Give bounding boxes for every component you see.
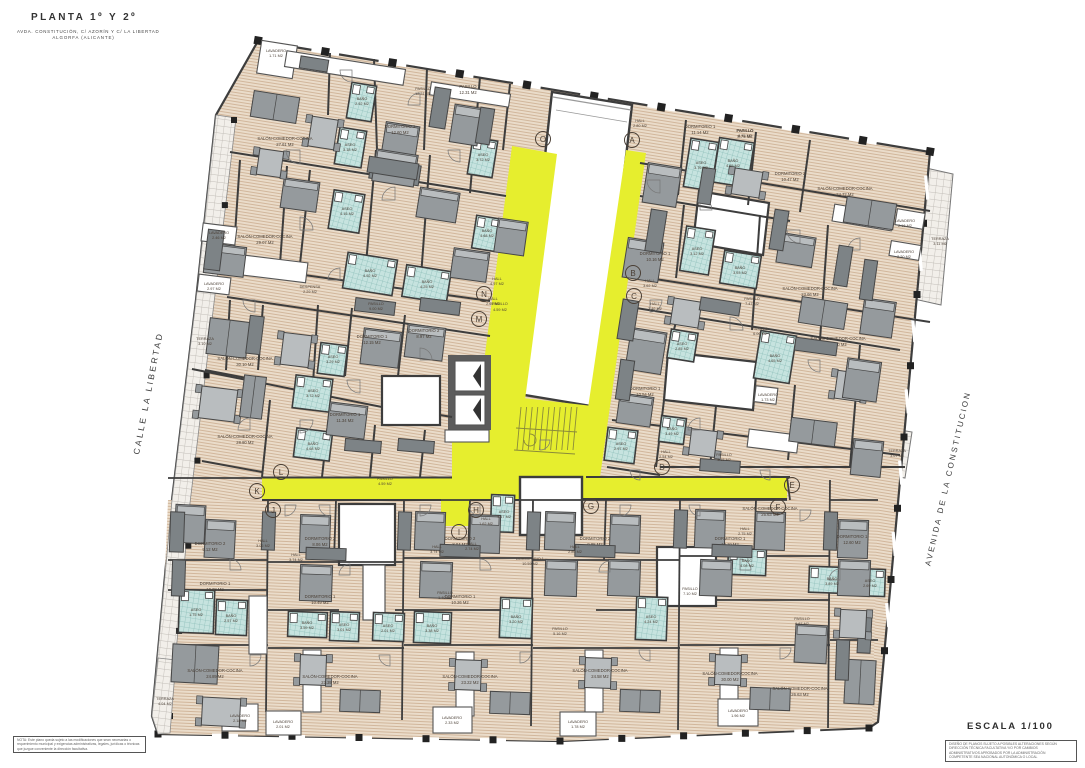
svg-text:DORMITORIO 1: DORMITORIO 1 (385, 124, 416, 129)
svg-text:3.20 M2: 3.20 M2 (509, 620, 523, 624)
svg-text:ASEO: ASEO (865, 579, 876, 583)
svg-text:SALÓN-COMEDOR-COCINA: SALÓN-COMEDOR-COCINA (782, 286, 837, 291)
svg-text:ASEO: ASEO (342, 207, 353, 211)
svg-text:LAVADERO: LAVADERO (894, 250, 914, 254)
svg-text:SALÓN-COMEDOR-COCINA: SALÓN-COMEDOR-COCINA (572, 668, 627, 673)
svg-text:24.72 M2: 24.72 M2 (836, 192, 854, 197)
svg-text:2.69 M2: 2.69 M2 (863, 584, 877, 588)
svg-text:2.97 M2: 2.97 M2 (614, 447, 628, 451)
svg-text:12.31 M2: 12.31 M2 (415, 92, 431, 96)
svg-text:PASILLO: PASILLO (744, 297, 760, 301)
svg-text:TERRAZA: TERRAZA (931, 237, 949, 241)
svg-text:DORMITORIO 2: DORMITORIO 2 (445, 536, 476, 541)
svg-text:2.20 M2: 2.20 M2 (897, 255, 911, 259)
svg-text:PASILLO: PASILLO (682, 587, 698, 591)
svg-text:SALÓN-COMEDOR-COCINA: SALÓN-COMEDOR-COCINA (702, 671, 757, 676)
svg-text:3.76 M2: 3.76 M2 (694, 166, 708, 170)
svg-text:LAVADERO: LAVADERO (728, 709, 748, 713)
svg-text:1.40 M2: 1.40 M2 (438, 596, 452, 600)
svg-text:HALL: HALL (570, 545, 580, 549)
svg-text:DORMITORIO 2: DORMITORIO 2 (305, 536, 336, 541)
svg-text:K: K (254, 487, 260, 496)
svg-text:8.97 M2: 8.97 M2 (416, 334, 432, 339)
svg-text:1.73 M2: 1.73 M2 (761, 398, 775, 402)
svg-text:L: L (279, 468, 284, 477)
svg-text:TERRAZA: TERRAZA (888, 449, 906, 453)
svg-text:BAÑO: BAÑO (667, 426, 678, 431)
svg-text:DORMITORIO 1: DORMITORIO 1 (200, 581, 231, 586)
svg-text:BAÑO: BAÑO (770, 353, 781, 358)
svg-text:LAVADERO: LAVADERO (442, 716, 462, 720)
svg-text:SALÓN-COMEDOR-COCINA: SALÓN-COMEDOR-COCINA (217, 434, 272, 439)
svg-text:BAÑO: BAÑO (427, 623, 438, 628)
svg-text:HALL: HALL (645, 279, 655, 283)
svg-text:BAÑO: BAÑO (511, 614, 522, 619)
svg-text:BAÑO: BAÑO (302, 620, 313, 625)
svg-text:30.10 M2: 30.10 M2 (236, 362, 254, 367)
svg-text:23.66 M2: 23.66 M2 (801, 292, 819, 297)
svg-text:3.01 M2: 3.01 M2 (337, 628, 351, 632)
svg-text:SALÓN-COMEDOR-COCINA: SALÓN-COMEDOR-COCINA (217, 356, 272, 361)
svg-text:1.62 M2: 1.62 M2 (479, 522, 493, 526)
svg-text:DORMITORIO 2: DORMITORIO 2 (580, 536, 611, 541)
svg-text:HALL: HALL (481, 517, 491, 521)
svg-text:DORMITORIO 1: DORMITORIO 1 (357, 334, 388, 339)
svg-text:BAÑO: BAÑO (308, 441, 319, 446)
svg-text:2.92 M2: 2.92 M2 (355, 102, 369, 106)
svg-text:LAVADERO: LAVADERO (209, 231, 229, 235)
svg-text:HALL: HALL (467, 542, 477, 546)
svg-text:SALÓN-COMEDOR-COCINA: SALÓN-COMEDOR-COCINA (257, 136, 312, 141)
svg-text:PASILLO: PASILLO (377, 477, 393, 481)
svg-text:4.25 M2: 4.25 M2 (420, 285, 434, 289)
svg-text:10.08 M2: 10.08 M2 (206, 587, 224, 592)
svg-text:3.06 M2: 3.06 M2 (256, 544, 270, 548)
svg-text:7.10 M2: 7.10 M2 (683, 592, 697, 596)
svg-text:12.60 M2: 12.60 M2 (843, 540, 861, 545)
svg-text:3.59 M2: 3.59 M2 (300, 626, 314, 630)
svg-text:5.16 M2: 5.16 M2 (553, 632, 567, 636)
svg-text:2.54 M2: 2.54 M2 (659, 455, 673, 459)
svg-text:6.00 M2: 6.00 M2 (753, 332, 767, 336)
svg-text:12.60 M2: 12.60 M2 (391, 130, 409, 135)
svg-text:PASILLO: PASILLO (794, 617, 810, 621)
svg-text:ASEO: ASEO (478, 153, 489, 157)
svg-text:SALÓN-COMEDOR-COCINA: SALÓN-COMEDOR-COCINA (187, 668, 242, 673)
svg-text:8.06 M2: 8.06 M2 (312, 542, 328, 547)
svg-text:3.38 M2: 3.38 M2 (425, 629, 439, 633)
svg-text:6.87 M2: 6.87 M2 (795, 622, 809, 626)
svg-text:2.97 M2: 2.97 M2 (207, 287, 221, 291)
svg-text:2.29 M2: 2.29 M2 (303, 290, 317, 294)
svg-text:LAVADERO: LAVADERO (758, 393, 778, 397)
svg-text:3.29 M2: 3.29 M2 (326, 360, 340, 364)
svg-text:29.07 M2: 29.07 M2 (256, 240, 274, 245)
svg-text:2.57 M2: 2.57 M2 (224, 619, 238, 623)
svg-text:G: G (588, 502, 594, 511)
svg-text:SALÓN-COMEDOR-COCINA: SALÓN-COMEDOR-COCINA (442, 674, 497, 679)
svg-text:3.18 M2: 3.18 M2 (343, 148, 357, 152)
svg-text:ASEO: ASEO (696, 161, 707, 165)
svg-text:10.59 M2: 10.59 M2 (522, 562, 538, 566)
svg-text:ASEO: ASEO (677, 342, 688, 346)
svg-text:ASEO: ASEO (339, 623, 350, 627)
svg-text:HALL: HALL (650, 302, 660, 306)
svg-text:2.16 M2: 2.16 M2 (898, 224, 912, 228)
svg-text:I: I (458, 528, 460, 537)
svg-text:PASILLO: PASILLO (459, 84, 477, 89)
svg-text:3.10 M2: 3.10 M2 (198, 342, 212, 346)
svg-text:4.68 M2: 4.68 M2 (480, 234, 494, 238)
svg-text:2.01 M2: 2.01 M2 (276, 725, 290, 729)
svg-text:4.17 M2: 4.17 M2 (497, 515, 511, 519)
svg-text:24.58 M2: 24.58 M2 (591, 674, 609, 679)
svg-text:BAÑO: BAÑO (482, 228, 493, 233)
svg-text:N: N (481, 290, 487, 299)
svg-text:3.89 M2: 3.89 M2 (825, 582, 839, 586)
svg-text:24.89 M2: 24.89 M2 (206, 674, 224, 679)
svg-text:3.46 M2: 3.46 M2 (648, 307, 662, 311)
svg-text:4.59 M2: 4.59 M2 (493, 308, 507, 312)
svg-text:DORMITORIO 1: DORMITORIO 1 (516, 557, 544, 561)
svg-text:2.65 M2: 2.65 M2 (486, 302, 500, 306)
svg-text:LAVADERO: LAVADERO (895, 219, 915, 223)
svg-text:BAÑO: BAÑO (728, 158, 739, 163)
svg-text:HALL: HALL (635, 119, 645, 123)
svg-text:4.68 M2: 4.68 M2 (306, 447, 320, 451)
svg-text:10.49 M2: 10.49 M2 (311, 600, 329, 605)
svg-text:SALÓN-COMEDOR-COCINA: SALÓN-COMEDOR-COCINA (237, 234, 292, 239)
svg-text:SALÓN-COMEDOR-COCINA: SALÓN-COMEDOR-COCINA (817, 186, 872, 191)
svg-text:BAÑO: BAÑO (742, 558, 753, 563)
svg-text:HALL: HALL (661, 450, 671, 454)
svg-text:10.54 M2: 10.54 M2 (636, 392, 654, 397)
svg-text:2.46 M2: 2.46 M2 (212, 236, 226, 240)
svg-text:BAÑO: BAÑO (365, 268, 376, 273)
svg-text:2.80 M2: 2.80 M2 (633, 124, 647, 128)
svg-text:3.74 M2: 3.74 M2 (289, 558, 303, 562)
svg-text:2.18 M2: 2.18 M2 (233, 719, 247, 723)
svg-text:PASILLO: PASILLO (415, 87, 431, 91)
svg-text:BAÑO: BAÑO (226, 613, 237, 618)
svg-text:28.80 M2: 28.80 M2 (236, 440, 254, 445)
svg-text:ASEO: ASEO (308, 389, 319, 393)
svg-text:SALÓN-COMEDOR-COCINA: SALÓN-COMEDOR-COCINA (302, 674, 357, 679)
svg-text:DESPENSA: DESPENSA (300, 285, 321, 289)
svg-text:3.72 M2: 3.72 M2 (476, 158, 490, 162)
svg-text:10.26 M2: 10.26 M2 (451, 600, 469, 605)
svg-text:HALL: HALL (258, 539, 268, 543)
svg-text:1.71 M2: 1.71 M2 (269, 54, 283, 58)
svg-text:E: E (789, 481, 794, 490)
svg-text:3.74 M2: 3.74 M2 (430, 550, 444, 554)
svg-text:26.63 M2: 26.63 M2 (791, 692, 809, 697)
svg-text:DORMITORIO 2: DORMITORIO 2 (195, 541, 226, 546)
svg-text:3.11 M2: 3.11 M2 (933, 242, 946, 246)
svg-text:BAÑO: BAÑO (827, 576, 838, 581)
svg-text:10.16 M2: 10.16 M2 (646, 257, 664, 262)
svg-text:2.85 M2: 2.85 M2 (675, 347, 689, 351)
svg-text:ASEO: ASEO (646, 615, 657, 619)
svg-text:ASEO: ASEO (328, 355, 339, 359)
svg-text:TERRAZA: TERRAZA (196, 337, 214, 341)
svg-text:M: M (476, 315, 483, 324)
svg-text:ASEO: ASEO (191, 608, 202, 612)
svg-text:3.12 M2: 3.12 M2 (690, 252, 704, 256)
svg-text:1.75 M2: 1.75 M2 (189, 613, 203, 617)
svg-text:ASEO: ASEO (616, 442, 627, 446)
svg-text:PASILLO: PASILLO (737, 129, 753, 133)
svg-text:SALÓN-COMEDOR-COCINA: SALÓN-COMEDOR-COCINA (772, 686, 827, 691)
svg-text:12.31 M2: 12.31 M2 (459, 90, 477, 95)
svg-text:2.75 M2: 2.75 M2 (738, 532, 752, 536)
svg-text:4.65 M2: 4.65 M2 (726, 164, 740, 168)
svg-text:3.62 M2: 3.62 M2 (643, 284, 657, 288)
svg-text:11.34 M2: 11.34 M2 (336, 418, 354, 423)
svg-text:9.12 M2: 9.12 M2 (202, 547, 218, 552)
svg-text:LAVADERO: LAVADERO (266, 49, 286, 53)
svg-text:4.97 M2: 4.97 M2 (490, 282, 504, 286)
svg-text:D: D (659, 463, 665, 472)
svg-text:PASILLO: PASILLO (752, 327, 768, 331)
svg-text:DORMITORIO 2: DORMITORIO 2 (409, 328, 440, 333)
svg-text:4.92 M2: 4.92 M2 (363, 274, 377, 278)
svg-text:10.47 M2: 10.47 M2 (781, 177, 799, 182)
svg-text:4.15 M2: 4.15 M2 (717, 458, 731, 462)
svg-text:LAVADERO: LAVADERO (230, 714, 250, 718)
svg-text:PASILLO: PASILLO (552, 627, 568, 631)
svg-text:4.24 M2: 4.24 M2 (644, 620, 658, 624)
svg-text:H: H (473, 506, 479, 515)
svg-text:J: J (271, 506, 275, 515)
svg-text:DORMITORIO 1: DORMITORIO 1 (630, 386, 661, 391)
svg-text:B: B (630, 269, 635, 278)
svg-text:3.07 M2: 3.07 M2 (890, 454, 904, 458)
svg-text:C: C (631, 292, 637, 301)
svg-text:LAVADERO: LAVADERO (568, 720, 588, 724)
svg-text:F: F (776, 503, 781, 512)
svg-text:11.14 M2: 11.14 M2 (691, 130, 709, 135)
svg-text:30.00 M2: 30.00 M2 (721, 677, 739, 682)
svg-text:O: O (540, 135, 546, 144)
svg-text:DORMITORIO 1: DORMITORIO 1 (715, 536, 746, 541)
svg-text:BAÑO: BAÑO (422, 279, 433, 284)
svg-text:4.15 M2: 4.15 M2 (340, 212, 354, 216)
svg-text:12.15 M2: 12.15 M2 (363, 340, 381, 345)
svg-text:3.72 M2: 3.72 M2 (306, 394, 320, 398)
svg-text:HALL: HALL (432, 545, 442, 549)
svg-text:27.61 M2: 27.61 M2 (276, 142, 294, 147)
svg-text:PASILLO: PASILLO (368, 302, 384, 306)
svg-text:1.96 M2: 1.96 M2 (731, 714, 745, 718)
svg-text:3.93 M2: 3.93 M2 (733, 271, 747, 275)
svg-text:3.49 M2: 3.49 M2 (665, 432, 679, 436)
svg-text:PASILLO: PASILLO (716, 453, 732, 457)
svg-text:HALL: HALL (291, 553, 301, 557)
svg-text:HALL: HALL (740, 527, 750, 531)
svg-text:ASEO: ASEO (345, 143, 356, 147)
svg-text:DORMITORIO 1: DORMITORIO 1 (330, 412, 361, 417)
svg-text:23.22 M2: 23.22 M2 (461, 680, 479, 685)
svg-text:BAÑO: BAÑO (735, 265, 746, 270)
svg-text:8.75 M2: 8.75 M2 (738, 134, 752, 138)
svg-text:PASILLO: PASILLO (437, 591, 453, 595)
svg-text:4.65 M2: 4.65 M2 (768, 359, 782, 363)
svg-text:4.04 M2: 4.04 M2 (158, 702, 172, 706)
svg-text:4.08 M2: 4.08 M2 (740, 564, 754, 568)
svg-text:2.86 M2: 2.86 M2 (568, 550, 582, 554)
svg-text:2.33 M2: 2.33 M2 (445, 721, 459, 725)
svg-text:A: A (629, 136, 635, 145)
svg-text:2.74 M2: 2.74 M2 (465, 547, 479, 551)
svg-text:BAÑO: BAÑO (357, 96, 368, 101)
svg-text:9.00 M2: 9.00 M2 (369, 307, 383, 311)
svg-text:7.47 M2: 7.47 M2 (745, 302, 759, 306)
svg-text:ASEO: ASEO (383, 624, 394, 628)
svg-text:DORMITORIO 2: DORMITORIO 2 (775, 171, 806, 176)
svg-text:DORMITORIO 1: DORMITORIO 1 (685, 124, 716, 129)
svg-text:4.59 M2: 4.59 M2 (378, 482, 392, 486)
svg-text:TERRAZA: TERRAZA (156, 697, 174, 701)
svg-text:ASEO: ASEO (692, 247, 703, 251)
svg-text:HALL: HALL (492, 277, 502, 281)
svg-text:DORMITORIO 1: DORMITORIO 1 (837, 534, 868, 539)
svg-text:DORMITORIO 1: DORMITORIO 1 (305, 594, 336, 599)
svg-text:1.78 M2: 1.78 M2 (571, 725, 585, 729)
svg-text:LAVADERO: LAVADERO (273, 720, 293, 724)
svg-text:ASEO: ASEO (499, 510, 510, 514)
svg-text:LAVADERO: LAVADERO (204, 282, 224, 286)
svg-text:23.39 M2: 23.39 M2 (321, 680, 339, 685)
svg-text:2.01 M2: 2.01 M2 (381, 629, 395, 633)
